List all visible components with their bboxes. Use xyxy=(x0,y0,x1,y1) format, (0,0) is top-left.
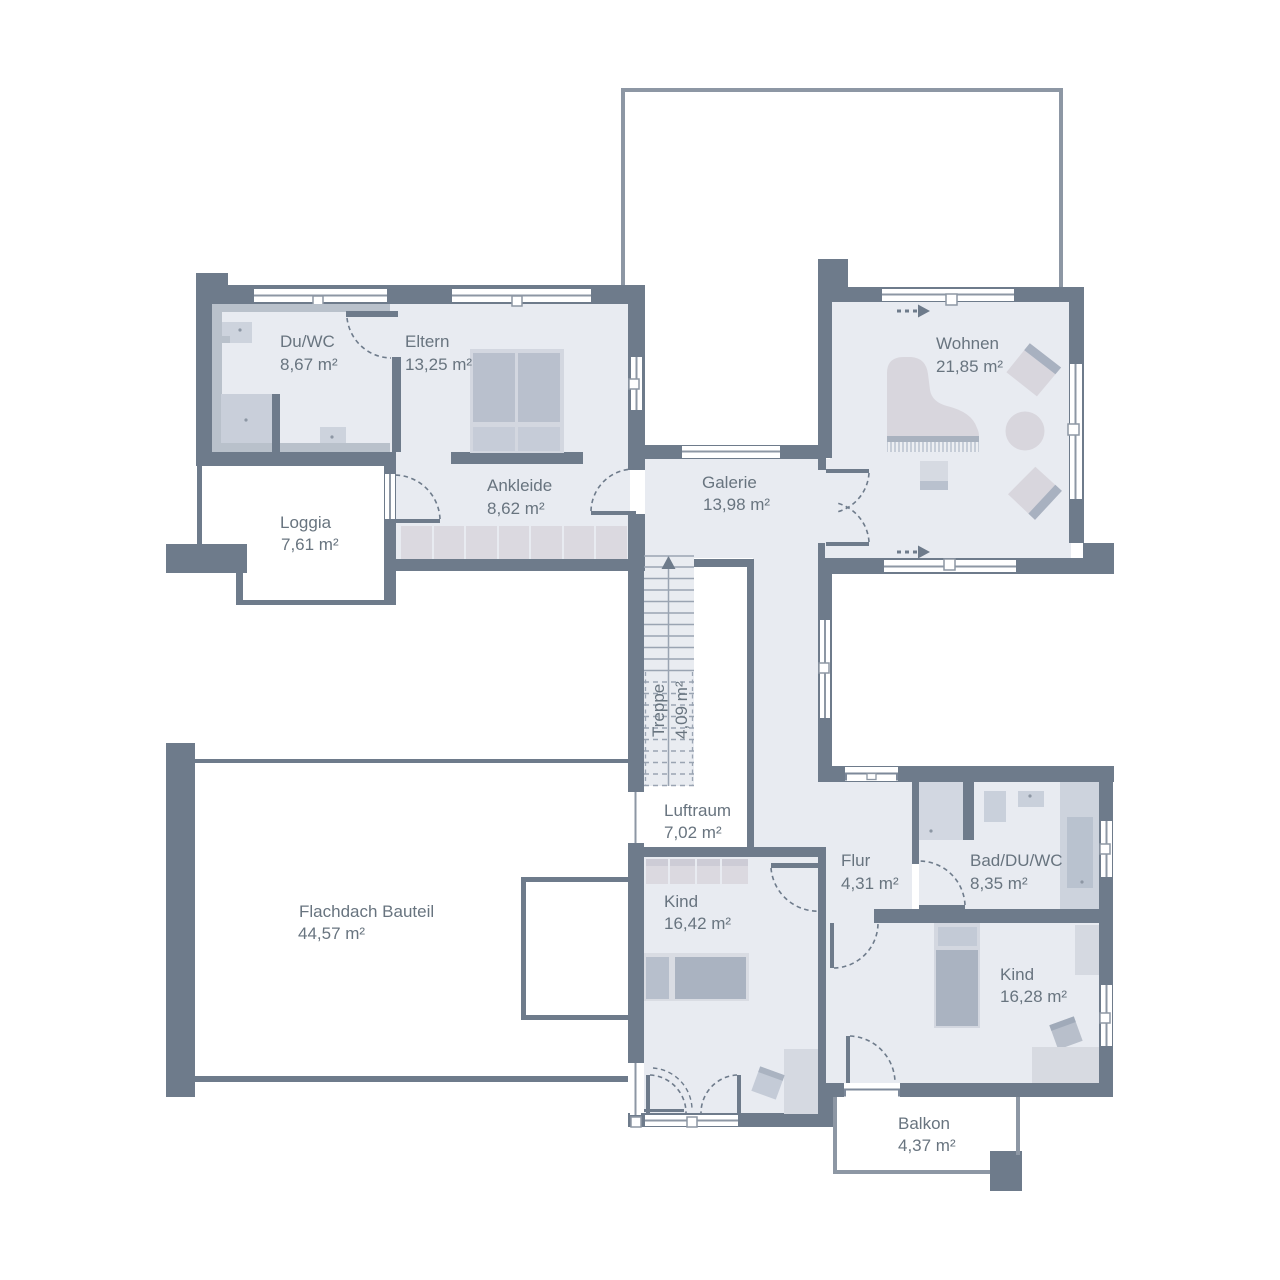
svg-text:4,31 m²: 4,31 m² xyxy=(841,874,899,893)
svg-text:Flur: Flur xyxy=(841,851,871,870)
svg-text:4,09 m²: 4,09 m² xyxy=(672,681,691,739)
svg-text:Flachdach Bauteil: Flachdach Bauteil xyxy=(299,902,434,921)
svg-text:8,67 m²: 8,67 m² xyxy=(280,355,338,374)
svg-text:13,25 m²: 13,25 m² xyxy=(405,355,472,374)
svg-text:8,35 m²: 8,35 m² xyxy=(970,874,1028,893)
svg-text:16,28 m²: 16,28 m² xyxy=(1000,987,1067,1006)
svg-text:16,42 m²: 16,42 m² xyxy=(664,914,731,933)
svg-text:Kind: Kind xyxy=(664,892,698,911)
svg-text:Kind: Kind xyxy=(1000,965,1034,984)
svg-text:13,98 m²: 13,98 m² xyxy=(703,495,770,514)
svg-text:8,62 m²: 8,62 m² xyxy=(487,499,545,518)
svg-text:Balkon: Balkon xyxy=(898,1114,950,1133)
svg-text:Bad/DU/WC: Bad/DU/WC xyxy=(970,851,1063,870)
svg-text:Galerie: Galerie xyxy=(702,473,757,492)
svg-text:4,37 m²: 4,37 m² xyxy=(898,1136,956,1155)
svg-text:Wohnen: Wohnen xyxy=(936,334,999,353)
svg-text:44,57 m²: 44,57 m² xyxy=(298,924,365,943)
svg-text:7,61 m²: 7,61 m² xyxy=(281,535,339,554)
svg-text:Treppe: Treppe xyxy=(649,684,668,737)
svg-text:7,02 m²: 7,02 m² xyxy=(664,823,722,842)
svg-text:Ankleide: Ankleide xyxy=(487,476,552,495)
svg-text:21,85 m²: 21,85 m² xyxy=(936,357,1003,376)
svg-text:Eltern: Eltern xyxy=(405,332,449,351)
svg-text:Loggia: Loggia xyxy=(280,513,332,532)
svg-text:Du/WC: Du/WC xyxy=(280,332,335,351)
svg-text:Luftraum: Luftraum xyxy=(664,801,731,820)
